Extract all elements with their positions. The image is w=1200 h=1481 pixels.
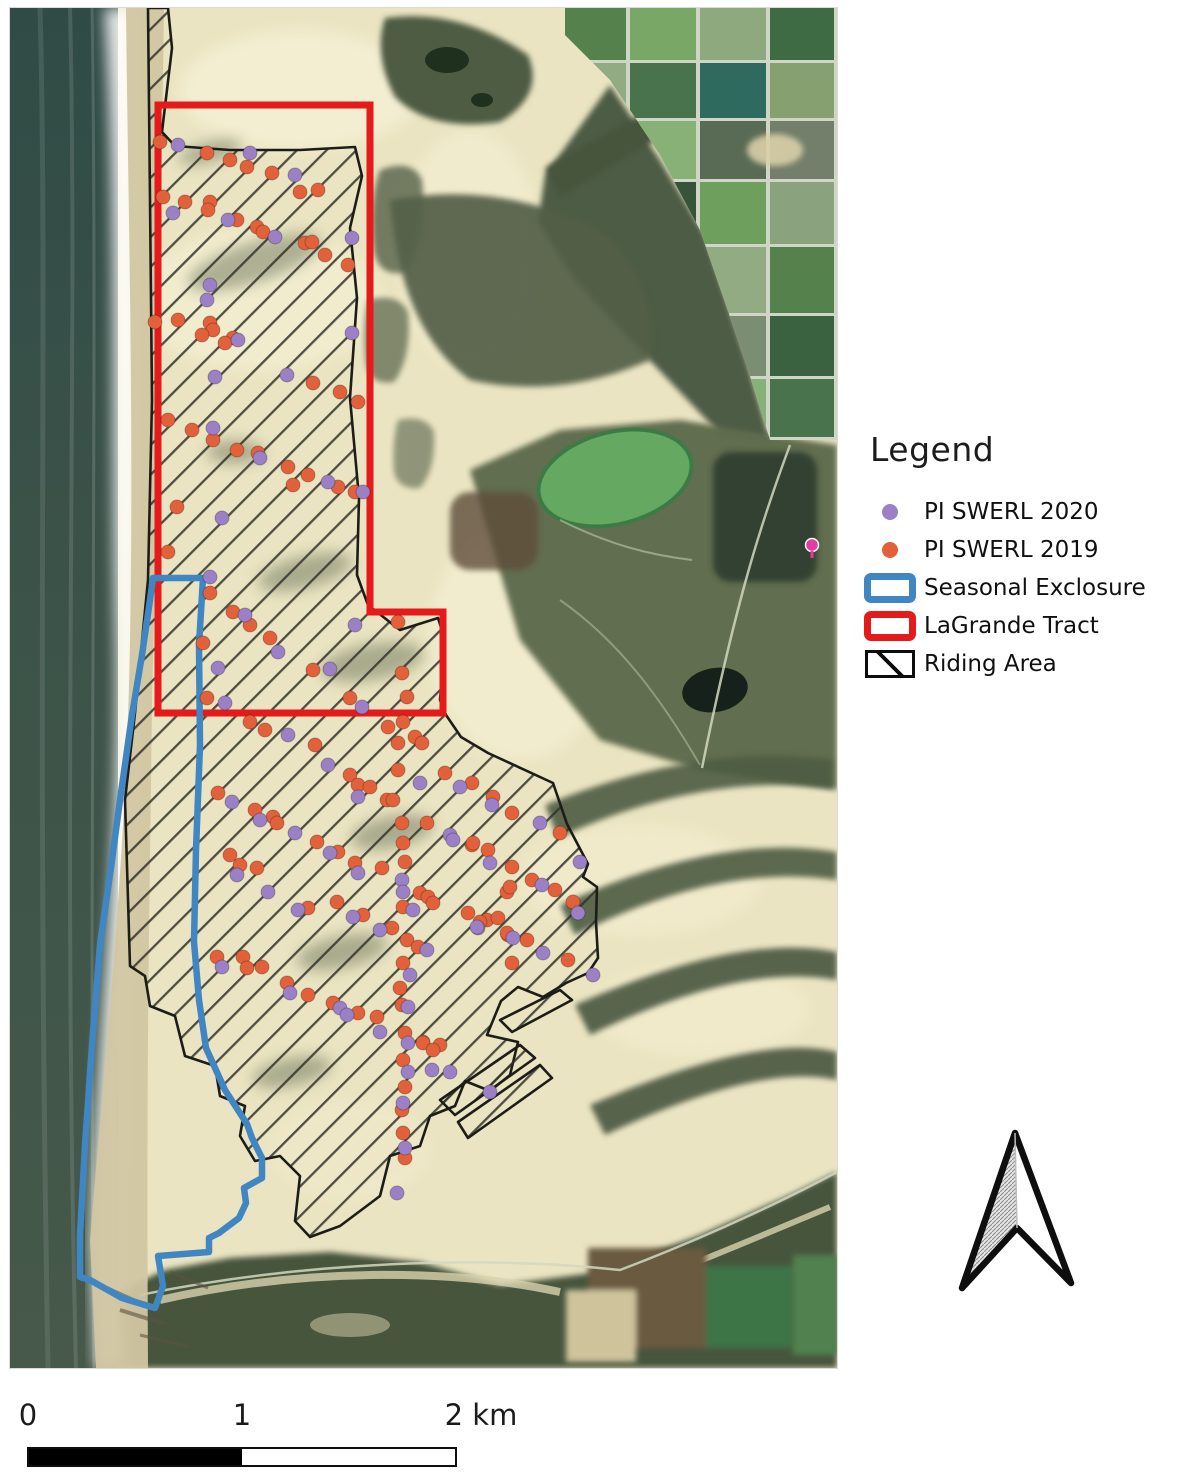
pi-swerl-2020-sample-dot [390, 1186, 404, 1200]
pi-swerl-2020-sample-dot [351, 790, 365, 804]
pi-swerl-2020-sample-dot [398, 1141, 412, 1155]
pi-swerl-2020-sample-dot [470, 920, 484, 934]
scale-bar-rule [27, 1447, 457, 1467]
pi-swerl-2020-sample-dot [283, 986, 297, 1000]
pi-swerl-2019-sample-dot [505, 860, 519, 874]
legend-item-label: LaGrande Tract [924, 613, 1099, 639]
pi-swerl-2019-sample-dot [553, 826, 567, 840]
legend: Legend PI SWERL 2020 PI SWERL 2019 Seaso… [858, 430, 1198, 683]
pi-swerl-2019-sample-dot [258, 723, 272, 737]
pi-swerl-2020-sample-dot [243, 146, 257, 160]
pi-swerl-2020-sample-dot [215, 511, 229, 525]
pi-swerl-2020-sample-dot [356, 485, 370, 499]
pi-swerl-2020-sample-dot [321, 475, 335, 489]
pi-swerl-2019-sample-dot [391, 763, 405, 777]
north-arrow [945, 1123, 1090, 1303]
pi-swerl-2020-sample-dot [238, 608, 252, 622]
legend-item-label: PI SWERL 2020 [924, 499, 1098, 525]
pi-swerl-2020-sample-dot [420, 943, 434, 957]
pi-swerl-2019-sample-dot [263, 631, 277, 645]
pi-swerl-2019-sample-dot [391, 615, 405, 629]
pi-swerl-2020-sample-dot [401, 1036, 415, 1050]
pi-swerl-2019-sample-dot [375, 861, 389, 875]
pi-swerl-2020-sample-dot [200, 293, 214, 307]
pi-swerl-2019-sample-dot [420, 816, 434, 830]
hatched-area-swatch [865, 650, 915, 678]
pi-swerl-2020-sample-dot [506, 931, 520, 945]
pi-swerl-2020-sample-dot [288, 168, 302, 182]
pi-swerl-2019-sample-dot [311, 183, 325, 197]
legend-item-riding-area[interactable]: Riding Area [858, 645, 1198, 683]
pi-swerl-2020-sample-dot [348, 618, 362, 632]
pi-swerl-2020-sample-dot [231, 333, 245, 347]
pi-swerl-2019-sample-dot [305, 235, 319, 249]
pi-swerl-2020-sample-dot [208, 370, 222, 384]
pi-swerl-2019-sample-dot [393, 981, 407, 995]
pi-swerl-2020-sample-dot [340, 1008, 354, 1022]
legend-item-seasonal-exclosure[interactable]: Seasonal Exclosure [858, 569, 1198, 607]
pi-swerl-2020-sample-dot [573, 855, 587, 869]
pi-swerl-2020-sample-dot [261, 885, 275, 899]
pi-swerl-2020-sample-dot [346, 910, 360, 924]
pi-swerl-2019-sample-dot [520, 933, 534, 947]
pi-swerl-2019-sample-dot [395, 666, 409, 680]
pi-swerl-2019-sample-dot [286, 478, 300, 492]
pi-swerl-2020-sample-dot [536, 946, 550, 960]
pi-swerl-2020-sample-dot [321, 758, 335, 772]
pi-swerl-2019-sample-dot [398, 855, 412, 869]
pi-swerl-2019-sample-dot [185, 423, 199, 437]
scale-bar-empty-segment [242, 1449, 455, 1465]
pi-swerl-2019-sample-dot [341, 258, 355, 272]
pi-swerl-2019-sample-dot [170, 500, 184, 514]
pi-swerl-2020-sample-dot [406, 903, 420, 917]
pi-swerl-2019-sample-dot [270, 816, 284, 830]
pi-swerl-2019-sample-dot [161, 413, 175, 427]
pi-swerl-2020-sample-dot [206, 421, 220, 435]
pi-swerl-2019-sample-dot [196, 636, 210, 650]
pi-swerl-2020-sample-dot [571, 906, 585, 920]
pi-swerl-2019-sample-dot [343, 691, 357, 705]
pi-swerl-2019-sample-dot [505, 806, 519, 820]
pi-swerl-2019-sample-dot [156, 190, 170, 204]
pi-swerl-2019-sample-dot [333, 385, 347, 399]
pi-swerl-2019-sample-dot [148, 315, 162, 329]
scale-bar-filled-segment [29, 1449, 242, 1465]
legend-title: Legend [870, 430, 1198, 469]
pi-swerl-2019-sample-dot [200, 146, 214, 160]
pi-swerl-2019-sample-dot [218, 336, 232, 350]
pi-swerl-2020-sample-dot [203, 278, 217, 292]
blue-outline-swatch [864, 573, 916, 603]
pi-swerl-2020-sample-dot [485, 798, 499, 812]
pi-swerl-2019-sample-dot [240, 160, 254, 174]
legend-item-label: Seasonal Exclosure [924, 575, 1146, 601]
pi-swerl-2020-sample-dot [345, 326, 359, 340]
pi-swerl-2020-sample-dot [401, 1065, 415, 1079]
pi-swerl-2019-sample-dot [426, 1043, 440, 1057]
scale-label-0: 0 [19, 1398, 37, 1432]
pi-swerl-2019-sample-dot [250, 861, 264, 875]
pi-swerl-2019-sample-dot [306, 376, 320, 390]
pi-swerl-2020-sample-dot [446, 833, 460, 847]
pi-swerl-2019-sample-dot [153, 135, 167, 149]
pi-swerl-2020-sample-dot [253, 451, 267, 465]
pi-swerl-2019-sample-dot [370, 1010, 384, 1024]
pi-swerl-2019-sample-dot [426, 896, 440, 910]
pi-swerl-2020-sample-dot [351, 866, 365, 880]
pi-swerl-2020-sample-dot [401, 1000, 415, 1014]
pi-swerl-2019-sample-dot [330, 895, 344, 909]
pi-swerl-2019-sample-dot [230, 443, 244, 457]
pi-swerl-2020-sample-dot [345, 231, 359, 245]
pi-swerl-2020-sample-dot [166, 206, 180, 220]
pi-swerl-2020-sample-dot [281, 728, 295, 742]
pi-swerl-2020-sample-dot [218, 696, 232, 710]
pi-swerl-2020-sample-dot [221, 213, 235, 227]
pi-swerl-2020-sample-dot [215, 960, 229, 974]
pi-swerl-2020-sample-dot [396, 1096, 410, 1110]
pi-swerl-2019-sample-dot [481, 843, 495, 857]
satellite-map [10, 8, 837, 1368]
pi-swerl-2019-sample-dot [310, 835, 324, 849]
pi-swerl-2020-sample-dot [373, 1025, 387, 1039]
pi-swerl-2019-sample-dot [318, 248, 332, 262]
orange-dot-swatch [882, 542, 898, 558]
purple-dot-swatch [882, 504, 898, 520]
pi-swerl-2019-sample-dot [438, 766, 452, 780]
pi-swerl-2019-sample-dot [396, 1126, 410, 1140]
pi-swerl-2020-sample-dot [533, 816, 547, 830]
pi-swerl-2020-sample-dot [211, 661, 225, 675]
pi-swerl-2019-sample-dot [201, 203, 215, 217]
pi-swerl-2020-sample-dot [535, 878, 549, 892]
pi-swerl-2019-sample-dot [503, 880, 517, 894]
pi-swerl-2020-sample-dot [271, 645, 285, 659]
legend-item-pi-swerl-2019[interactable]: PI SWERL 2019 [858, 531, 1198, 569]
pi-swerl-2020-sample-dot [268, 230, 282, 244]
pi-swerl-2020-sample-dot [203, 570, 217, 584]
pi-swerl-2019-sample-dot [391, 736, 405, 750]
pi-swerl-2020-sample-dot [425, 1063, 439, 1077]
scale-label-1: 1 [233, 1398, 251, 1432]
pi-swerl-2020-sample-dot [483, 1085, 497, 1099]
pi-swerl-2019-sample-dot [301, 468, 315, 482]
pi-swerl-2019-sample-dot [491, 911, 505, 925]
pi-swerl-2020-sample-dot [443, 1065, 457, 1079]
pi-swerl-2020-sample-dot [291, 903, 305, 917]
pi-swerl-2019-sample-dot [240, 961, 254, 975]
pi-swerl-2019-sample-dot [396, 715, 410, 729]
pi-swerl-2020-sample-dot [373, 923, 387, 937]
legend-item-lagrande-tract[interactable]: LaGrande Tract [858, 607, 1198, 645]
pi-swerl-2019-sample-dot [351, 395, 365, 409]
pi-swerl-2019-sample-dot [548, 883, 562, 897]
scale-bar: 0 1 2 km [0, 1398, 600, 1478]
legend-item-pi-swerl-2020[interactable]: PI SWERL 2020 [858, 493, 1198, 531]
pi-swerl-2019-sample-dot [211, 786, 225, 800]
pi-swerl-2020-sample-dot [396, 885, 410, 899]
legend-item-label: PI SWERL 2019 [924, 537, 1098, 563]
pi-swerl-2019-sample-dot [308, 738, 322, 752]
pi-swerl-2019-sample-dot [293, 185, 307, 199]
pi-swerl-2019-sample-dot [386, 793, 400, 807]
pi-swerl-2019-sample-dot [200, 691, 214, 705]
pi-swerl-2019-sample-dot [171, 313, 185, 327]
sand-spit [747, 134, 803, 166]
pi-swerl-2020-sample-dot [355, 700, 369, 714]
pi-swerl-2020-sample-dot [171, 138, 185, 152]
pi-swerl-2019-sample-dot [363, 780, 377, 794]
pi-swerl-2019-sample-dot [381, 720, 395, 734]
scale-label-2km: 2 km [445, 1398, 518, 1432]
legend-item-label: Riding Area [924, 651, 1057, 677]
pi-swerl-2019-sample-dot [178, 195, 192, 209]
pi-swerl-2019-sample-dot [461, 906, 475, 920]
pi-swerl-2019-sample-dot [195, 328, 209, 342]
red-outline-swatch [864, 611, 916, 641]
pi-swerl-2019-sample-dot [561, 953, 575, 967]
pi-swerl-2019-sample-dot [203, 586, 217, 600]
pi-swerl-2020-sample-dot [413, 776, 427, 790]
pi-swerl-2019-sample-dot [466, 836, 480, 850]
pi-swerl-2020-sample-dot [323, 846, 337, 860]
pi-swerl-2019-sample-dot [398, 1080, 412, 1094]
pi-swerl-2020-sample-dot [280, 368, 294, 382]
pi-swerl-2019-sample-dot [396, 836, 410, 850]
pi-swerl-2020-sample-dot [253, 813, 267, 827]
pi-swerl-2020-sample-dot [403, 968, 417, 982]
map-panel [10, 8, 837, 1368]
pi-swerl-2020-sample-dot [483, 856, 497, 870]
pi-swerl-2019-sample-dot [243, 715, 257, 729]
pi-swerl-2020-sample-dot [230, 868, 244, 882]
pi-swerl-2019-sample-dot [301, 988, 315, 1002]
figure-page: { "legend": { "title": "Legend", "items"… [0, 0, 1200, 1481]
pi-swerl-2019-sample-dot [306, 663, 320, 677]
pi-swerl-2019-sample-dot [400, 690, 414, 704]
pi-swerl-2019-sample-dot [415, 736, 429, 750]
pi-swerl-2019-sample-dot [395, 816, 409, 830]
pi-swerl-2019-sample-dot [281, 460, 295, 474]
pi-swerl-2020-sample-dot [323, 662, 337, 676]
pi-swerl-2019-sample-dot [265, 166, 279, 180]
pi-swerl-2020-sample-dot [225, 795, 239, 809]
pi-swerl-2019-sample-dot [505, 956, 519, 970]
pi-swerl-2019-sample-dot [255, 960, 269, 974]
pi-swerl-2020-sample-dot [288, 826, 302, 840]
pi-swerl-2020-sample-dot [453, 780, 467, 794]
pi-swerl-2019-sample-dot [161, 545, 175, 559]
farmland-bottom [566, 1248, 837, 1362]
pi-swerl-2019-sample-dot [223, 153, 237, 167]
pi-swerl-2020-sample-dot [586, 968, 600, 982]
